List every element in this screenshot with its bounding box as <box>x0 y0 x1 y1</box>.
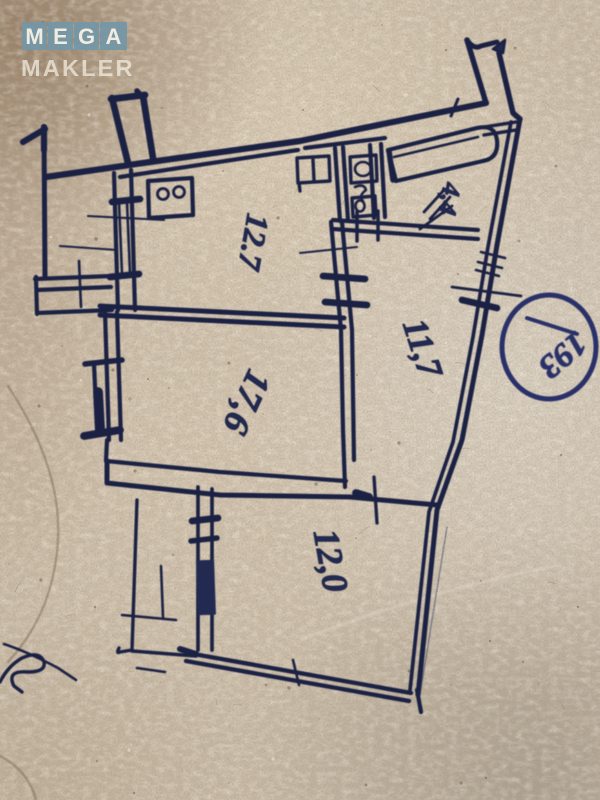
svg-text:G: G <box>78 24 95 49</box>
svg-text:MAKLER: MAKLER <box>21 55 135 81</box>
svg-text:A: A <box>106 24 122 49</box>
svg-text:M: M <box>25 24 43 49</box>
svg-text:E: E <box>53 24 68 49</box>
svg-text:4,4: 4,4 <box>432 180 466 218</box>
